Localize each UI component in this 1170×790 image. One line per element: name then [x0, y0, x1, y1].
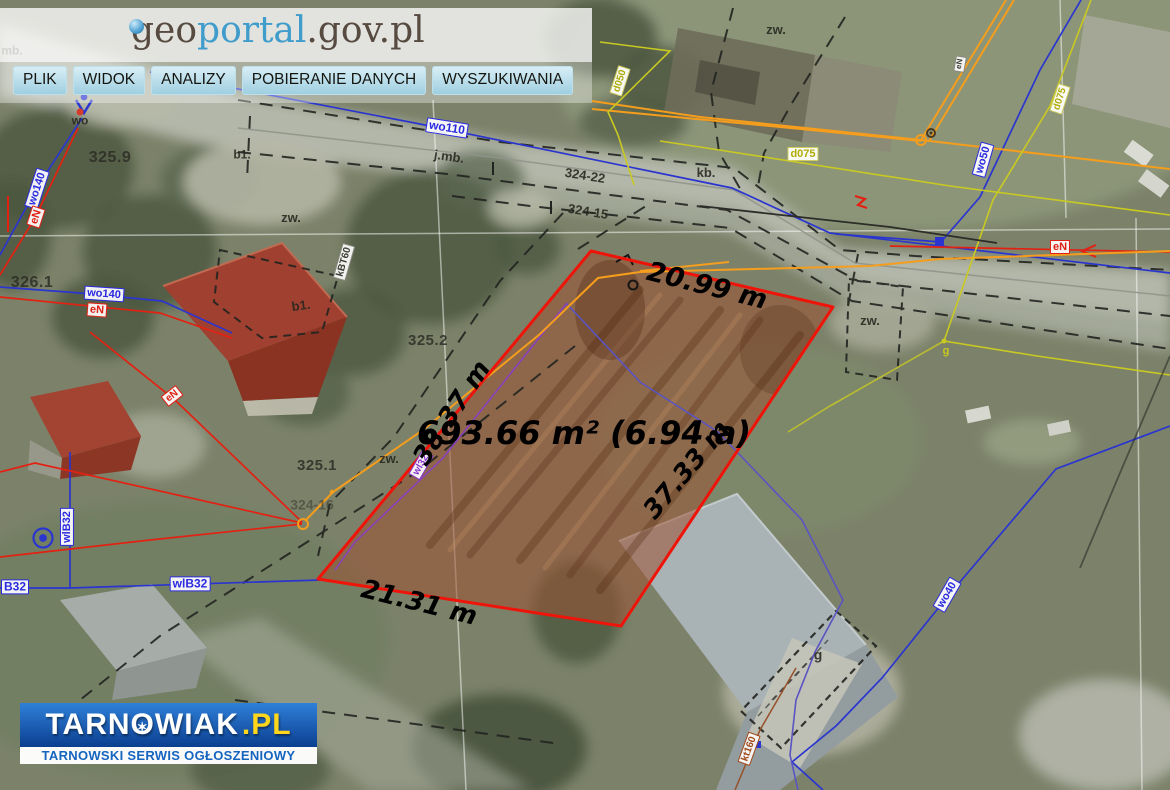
- menu-button-analizy[interactable]: ANALIZY: [151, 66, 236, 95]
- brand-suffix: WIAK: [155, 708, 239, 742]
- main-menu: PLIKWIDOKANALIZYPOBIERANIE DANYCHWYSZUKI…: [0, 66, 605, 95]
- tarnowiak-logo: TARNO✶WIAK.PL TARNOWSKI SERWIS OGŁOSZENI…: [20, 703, 317, 764]
- menu-button-wyszukiwania[interactable]: WYSZUKIWANIA: [432, 66, 573, 95]
- logo-text-portal: portal: [197, 10, 306, 51]
- tarnowiak-tagline: TARNOWSKI SERWIS OGŁOSZENIOWY: [20, 747, 317, 764]
- geoportal-logo[interactable]: geoportal.gov.pl: [0, 10, 592, 60]
- menu-button-plik[interactable]: PLIK: [13, 66, 67, 95]
- star-icon: ✶: [137, 721, 149, 734]
- brand-o: O✶: [131, 708, 155, 742]
- geoportal-app: mb.wo325.9wo140eN326.1wo140eNb1.zw.wo110…: [0, 0, 1170, 790]
- logo-text-suffix: .gov.pl: [306, 10, 424, 51]
- brand-tld: .PL: [242, 708, 292, 742]
- map-canvas[interactable]: [0, 0, 1170, 790]
- menu-button-widok[interactable]: WIDOK: [73, 66, 146, 95]
- brand-prefix: TARN: [45, 708, 130, 742]
- tarnowiak-wordmark: TARNO✶WIAK.PL: [20, 703, 317, 747]
- globe-icon: [129, 19, 144, 34]
- menu-button-pobieranie-danych[interactable]: POBIERANIE DANYCH: [242, 66, 427, 95]
